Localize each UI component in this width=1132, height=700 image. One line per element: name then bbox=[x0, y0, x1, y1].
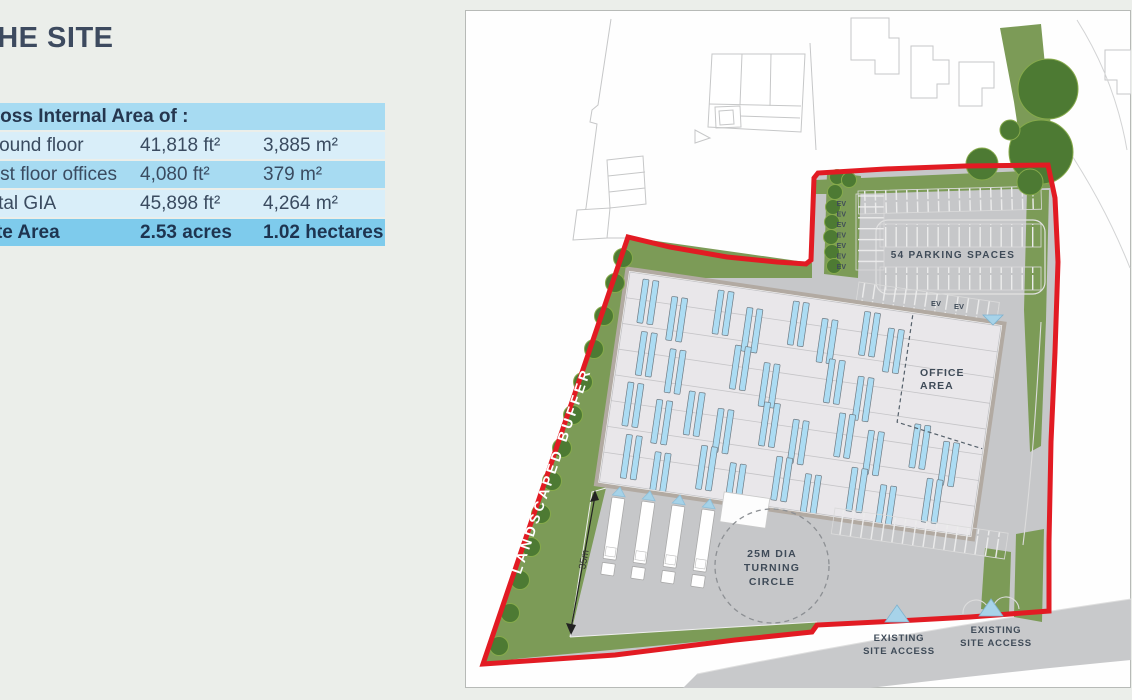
row-metric: 4,264 m² bbox=[263, 193, 385, 215]
ev-bays-column bbox=[856, 194, 884, 270]
svg-text:EXISTING: EXISTING bbox=[971, 625, 1022, 636]
tree-icon bbox=[1000, 120, 1020, 140]
table-header-label: Gross Internal Area of : bbox=[0, 106, 385, 128]
row-imperial: 4,080 ft² bbox=[140, 164, 263, 186]
row-label: Site Area bbox=[0, 222, 140, 244]
row-imperial: 41,818 ft² bbox=[140, 135, 263, 157]
table-row: Total GIA 45,898 ft² 4,264 m² bbox=[0, 190, 385, 217]
row-metric: 3,885 m² bbox=[263, 135, 385, 157]
svg-text:EV: EV bbox=[837, 264, 847, 271]
svg-text:25M DIA: 25M DIA bbox=[747, 548, 797, 560]
page: { "page": { "title": "THE SITE" }, "tabl… bbox=[0, 0, 1132, 700]
row-label: Ground floor bbox=[0, 135, 140, 157]
svg-text:EV: EV bbox=[837, 212, 847, 219]
row-metric: 1.02 hectares bbox=[263, 222, 385, 244]
svg-text:EV: EV bbox=[837, 233, 847, 240]
svg-text:EV: EV bbox=[837, 222, 847, 229]
row-label: Total GIA bbox=[0, 193, 140, 215]
loading-dock bbox=[720, 492, 770, 528]
svg-text:AREA: AREA bbox=[920, 380, 954, 392]
table-row: First floor offices 4,080 ft² 379 m² bbox=[0, 161, 385, 188]
row-imperial: 2.53 acres bbox=[140, 222, 263, 244]
turning-circle-label: 25M DIA TURNING CIRCLE bbox=[744, 548, 800, 588]
table-row-site-area: Site Area 2.53 acres 1.02 hectares bbox=[0, 219, 385, 246]
row-metric: 379 m² bbox=[263, 164, 385, 186]
svg-text:CIRCLE: CIRCLE bbox=[749, 576, 795, 588]
table-row: Ground floor 41,818 ft² 3,885 m² bbox=[0, 132, 385, 159]
svg-text:EV: EV bbox=[931, 299, 941, 308]
svg-text:OFFICE: OFFICE bbox=[920, 367, 965, 379]
tree-icon bbox=[1018, 59, 1078, 119]
svg-text:TURNING: TURNING bbox=[744, 562, 800, 574]
site-plan-drawing: 54 PARKING SPACES EV EV EV EV EV EV EV E… bbox=[465, 10, 1131, 688]
page-title: THE SITE bbox=[0, 22, 114, 55]
svg-text:EV: EV bbox=[954, 302, 964, 311]
svg-text:SITE ACCESS: SITE ACCESS bbox=[960, 638, 1032, 649]
parking-count-label: 54 PARKING SPACES bbox=[891, 250, 1016, 261]
svg-text:EV: EV bbox=[837, 201, 847, 208]
svg-text:EXISTING: EXISTING bbox=[874, 633, 925, 644]
tree-icon bbox=[1017, 169, 1043, 195]
table-header-row: Gross Internal Area of : bbox=[0, 103, 385, 130]
svg-text:EV: EV bbox=[837, 254, 847, 261]
gia-table: Gross Internal Area of : Ground floor 41… bbox=[0, 103, 385, 248]
svg-text:SITE ACCESS: SITE ACCESS bbox=[863, 646, 935, 657]
row-imperial: 45,898 ft² bbox=[140, 193, 263, 215]
row-label: First floor offices bbox=[0, 164, 140, 186]
site-plan-panel: 54 PARKING SPACES EV EV EV EV EV EV EV E… bbox=[465, 10, 1131, 688]
svg-text:EV: EV bbox=[837, 243, 847, 250]
